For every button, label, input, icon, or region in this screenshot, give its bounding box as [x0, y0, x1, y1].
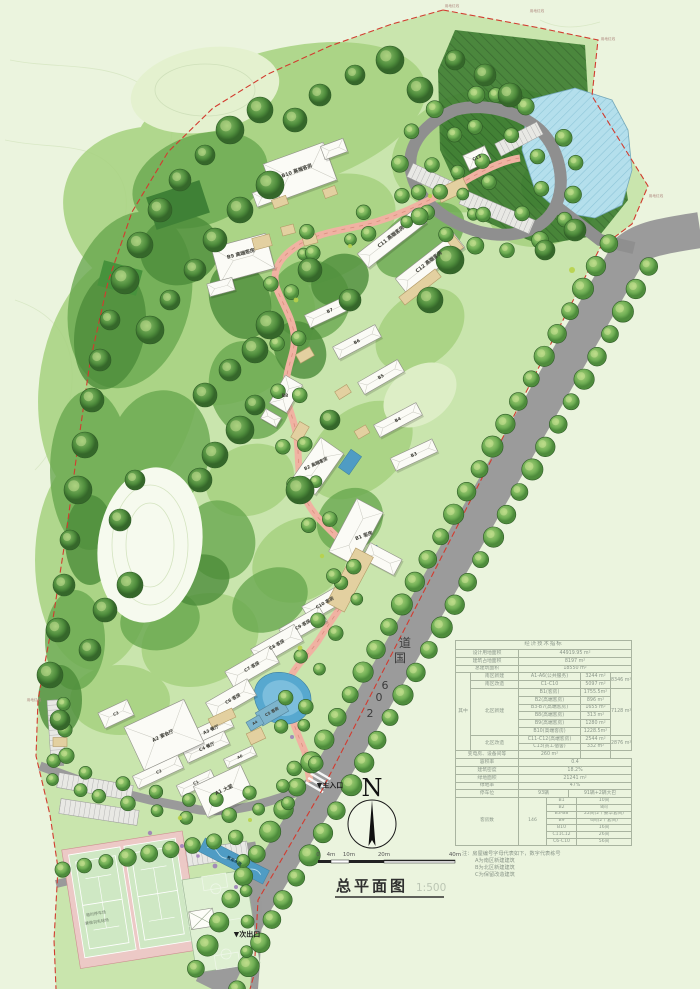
- tree-icon: [474, 64, 496, 86]
- svg-text:2: 2: [367, 707, 374, 720]
- tree-icon: [353, 662, 373, 682]
- tree-icon: [276, 779, 289, 792]
- tree-icon: [411, 208, 428, 225]
- tree-icon: [260, 821, 281, 842]
- tree-icon: [226, 416, 254, 444]
- tree-icon: [534, 181, 549, 196]
- boundary-label: 用地红线: [530, 9, 544, 13]
- tree-icon: [109, 509, 131, 531]
- tree-icon: [468, 86, 485, 103]
- tree-icon: [197, 935, 218, 956]
- tree-icon: [80, 388, 104, 412]
- tree-icon: [227, 197, 253, 223]
- svg-text:4m: 4m: [327, 852, 336, 858]
- table-title: 经济技术指标: [456, 641, 632, 650]
- tree-icon: [586, 256, 606, 276]
- tree-icon: [439, 227, 454, 242]
- tree-icon: [326, 569, 341, 584]
- tree-icon: [149, 785, 163, 799]
- tree-icon: [382, 709, 398, 725]
- main-entrance-label: ▼主入口: [317, 783, 343, 790]
- tree-icon: [497, 505, 516, 524]
- tree-icon: [351, 593, 363, 605]
- tree-icon: [308, 756, 323, 771]
- tree-icon: [433, 184, 448, 199]
- tree-icon: [548, 324, 567, 343]
- tree-icon: [241, 915, 254, 928]
- tree-icon: [564, 186, 581, 203]
- indicator-table: 经济技术指标 设计用地面积44919.95 m² 建筑占地面积8197 m² 总…: [455, 640, 632, 790]
- tree-icon: [273, 891, 292, 910]
- tree-icon: [283, 108, 307, 132]
- note-line: B为北区新建建筑: [462, 865, 561, 872]
- note-line: 注：房屋编号字母代表如下，数字代表栋号: [462, 851, 561, 858]
- tree-icon: [245, 395, 265, 415]
- tree-icon: [141, 845, 158, 862]
- svg-text:6: 6: [382, 679, 389, 692]
- tree-icon: [264, 277, 279, 292]
- tree-icon: [99, 854, 113, 868]
- tree-icon: [530, 149, 545, 164]
- svg-text:0: 0: [316, 852, 320, 858]
- tree-icon: [535, 437, 555, 457]
- tree-icon: [136, 316, 164, 344]
- tree-icon: [309, 84, 331, 106]
- tree-icon: [188, 468, 212, 492]
- tree-icon: [256, 311, 284, 339]
- tree-icon: [37, 662, 63, 688]
- tree-icon: [294, 650, 308, 664]
- note-line: C为保留改造建筑: [462, 872, 561, 879]
- tree-icon: [411, 185, 426, 200]
- tree-icon: [209, 912, 229, 932]
- tree-icon: [46, 618, 70, 642]
- tree-icon: [222, 890, 240, 908]
- tree-icon: [328, 708, 346, 726]
- tree-icon: [286, 476, 314, 504]
- tree-icon: [79, 639, 101, 661]
- tree-icon: [242, 337, 268, 363]
- tree-icon: [500, 243, 515, 258]
- tree-icon: [278, 690, 293, 705]
- tree-icon: [311, 613, 326, 628]
- tree-icon: [612, 301, 633, 322]
- tree-icon: [391, 594, 412, 615]
- tree-icon: [457, 188, 469, 200]
- tree-icon: [407, 663, 426, 682]
- tree-icon: [248, 845, 265, 862]
- tree-icon: [79, 766, 92, 779]
- tree-icon: [417, 287, 443, 313]
- tree-icon: [391, 155, 408, 172]
- tree-icon: [342, 687, 358, 703]
- tree-icon: [274, 720, 288, 734]
- tree-icon: [640, 258, 658, 276]
- boundary-label: 用地红线: [27, 698, 41, 702]
- tree-icon: [216, 116, 244, 144]
- tree-icon: [119, 849, 137, 867]
- tree-icon: [203, 228, 227, 252]
- tree-icon: [298, 719, 310, 731]
- svg-text:40m: 40m: [449, 852, 461, 858]
- rooms-table: 客房数146B110间 B28间 B3-B822间(2个豪华套间) B94间(2…: [455, 797, 632, 846]
- tree-icon: [322, 512, 337, 527]
- tree-icon: [117, 572, 143, 598]
- tree-icon: [588, 347, 607, 366]
- tree-icon: [426, 101, 443, 118]
- tree-icon: [193, 383, 217, 407]
- tree-icon: [287, 761, 302, 776]
- tree-icon: [182, 793, 195, 806]
- tree-icon: [562, 303, 579, 320]
- tree-icon: [148, 198, 172, 222]
- svg-text:20m: 20m: [378, 852, 390, 858]
- tree-icon: [301, 518, 316, 533]
- drawing-title: 总平面图: [336, 877, 408, 895]
- tree-icon: [292, 388, 307, 403]
- tree-icon: [74, 784, 87, 797]
- tree-icon: [451, 165, 465, 179]
- tree-icon: [60, 530, 80, 550]
- tree-icon: [241, 946, 253, 958]
- tree-icon: [253, 803, 265, 815]
- tree-icon: [459, 573, 477, 591]
- tree-icon: [568, 155, 583, 170]
- tree-icon: [445, 595, 465, 615]
- tree-icon: [523, 371, 539, 387]
- building-footprint: [53, 738, 67, 747]
- north-letter: N: [362, 774, 383, 802]
- tree-icon: [345, 65, 365, 85]
- tree-icon: [313, 823, 333, 843]
- tree-icon: [496, 414, 516, 434]
- tree-icon: [471, 461, 488, 478]
- tree-icon: [228, 830, 243, 845]
- tree-icon: [395, 188, 410, 203]
- tree-icon: [72, 432, 98, 458]
- tree-icon: [184, 838, 200, 854]
- tree-icon: [404, 124, 419, 139]
- tree-icon: [263, 911, 281, 929]
- tree-icon: [50, 710, 70, 730]
- tree-icon: [511, 483, 528, 500]
- tree-icon: [405, 572, 425, 592]
- tree-icon: [276, 439, 291, 454]
- tree-icon: [240, 885, 252, 897]
- tree-icon: [187, 960, 204, 977]
- tree-icon: [298, 258, 322, 282]
- tree-icon: [425, 157, 440, 172]
- tree-icon: [127, 232, 153, 258]
- tree-icon: [339, 289, 361, 311]
- tree-icon: [341, 775, 362, 796]
- tree-icon: [89, 349, 111, 371]
- tree-icon: [482, 175, 497, 190]
- tree-icon: [202, 442, 228, 468]
- tree-icon: [445, 50, 465, 70]
- tree-icon: [125, 470, 145, 490]
- tree-icon: [160, 290, 180, 310]
- tree-icon: [64, 476, 92, 504]
- tree-icon: [314, 730, 334, 750]
- building-label-b8: B8: [282, 394, 288, 398]
- tree-icon: [572, 278, 593, 299]
- tree-icon: [600, 235, 618, 253]
- tree-icon: [55, 862, 70, 877]
- tree-icon: [443, 504, 463, 524]
- tree-icon: [57, 697, 70, 710]
- tree-icon: [626, 279, 646, 299]
- tree-icon: [238, 955, 259, 976]
- tree-icon: [433, 529, 449, 545]
- tree-icon: [243, 786, 257, 800]
- tree-icon: [320, 410, 340, 430]
- tree-icon: [515, 206, 530, 221]
- tree-icon: [47, 774, 59, 786]
- tree-icon: [380, 618, 397, 635]
- tree-icon: [361, 226, 376, 241]
- secondary-exit-label: ▼次出口: [234, 932, 260, 939]
- legend-notes: 注：房屋编号字母代表如下，数字代表栋号 A为南区新建建筑 B为北区新建建筑 C为…: [462, 851, 561, 879]
- tree-icon: [281, 797, 294, 810]
- boundary-label: 用地红线: [445, 4, 459, 8]
- tree-icon: [574, 369, 594, 389]
- tree-icon: [163, 841, 180, 858]
- tree-icon: [288, 778, 306, 796]
- tree-icon: [468, 119, 483, 134]
- svg-text:道: 道: [399, 636, 411, 650]
- tree-icon: [504, 128, 519, 143]
- svg-text:0: 0: [376, 691, 383, 704]
- tree-icon: [256, 171, 284, 199]
- tree-icon: [219, 359, 241, 381]
- tree-icon: [522, 459, 543, 480]
- tree-icon: [564, 219, 586, 241]
- tree-icon: [498, 83, 522, 107]
- boundary-label: 用地红线: [601, 37, 615, 41]
- tree-icon: [195, 145, 215, 165]
- tree-icon: [297, 437, 312, 452]
- tree-icon: [222, 808, 237, 823]
- tree-icon: [111, 266, 139, 294]
- tree-icon: [447, 127, 462, 142]
- tree-icon: [247, 97, 273, 123]
- tree-icon: [53, 574, 75, 596]
- tree-icon: [116, 777, 130, 791]
- tree-icon: [356, 205, 371, 220]
- site-plan-page: 道 国 6 0 2 N 0 4m 10m 20m 40m 总平面图 1:500 …: [0, 0, 700, 989]
- tree-icon: [473, 552, 489, 568]
- tree-icon: [354, 753, 374, 773]
- boundary-label: 用地红线: [649, 194, 663, 198]
- tree-icon: [483, 527, 503, 547]
- tree-icon: [368, 731, 386, 749]
- tree-icon: [169, 169, 191, 191]
- tree-icon: [59, 748, 75, 764]
- note-line: A为南区新建建筑: [462, 858, 561, 865]
- tree-icon: [457, 482, 476, 501]
- tree-icon: [300, 224, 315, 239]
- tree-icon: [420, 641, 437, 658]
- tree-icon: [549, 415, 567, 433]
- tree-icon: [151, 805, 163, 817]
- svg-text:国: 国: [394, 651, 406, 665]
- tree-icon: [206, 834, 221, 849]
- tree-icon: [291, 331, 306, 346]
- tree-icon: [535, 240, 555, 260]
- tree-icon: [92, 789, 106, 803]
- tree-icon: [563, 394, 579, 410]
- tree-icon: [288, 869, 305, 886]
- tree-icon: [313, 663, 325, 675]
- tree-icon: [93, 598, 117, 622]
- tree-icon: [467, 237, 484, 254]
- tree-icon: [344, 234, 356, 246]
- tree-icon: [601, 326, 618, 343]
- tree-icon: [367, 640, 386, 659]
- tree-icon: [100, 310, 120, 330]
- tree-icon: [419, 550, 437, 568]
- tree-icon: [376, 46, 404, 74]
- tree-icon: [509, 393, 527, 411]
- tree-icon: [234, 867, 253, 886]
- drawing-scale: 1:500: [416, 882, 446, 894]
- tree-icon: [482, 436, 503, 457]
- tree-icon: [121, 796, 136, 811]
- tree-icon: [431, 617, 452, 638]
- tree-icon: [328, 626, 343, 641]
- svg-text:10m: 10m: [343, 852, 355, 858]
- tree-icon: [327, 802, 345, 820]
- tree-icon: [284, 285, 299, 300]
- tree-icon: [534, 346, 554, 366]
- tree-icon: [184, 259, 206, 281]
- tree-icon: [393, 685, 413, 705]
- tree-icon: [77, 858, 92, 873]
- tree-icon: [346, 559, 361, 574]
- tree-icon: [298, 699, 313, 714]
- tree-icon: [555, 129, 572, 146]
- tree-icon: [476, 207, 491, 222]
- tree-icon: [407, 77, 433, 103]
